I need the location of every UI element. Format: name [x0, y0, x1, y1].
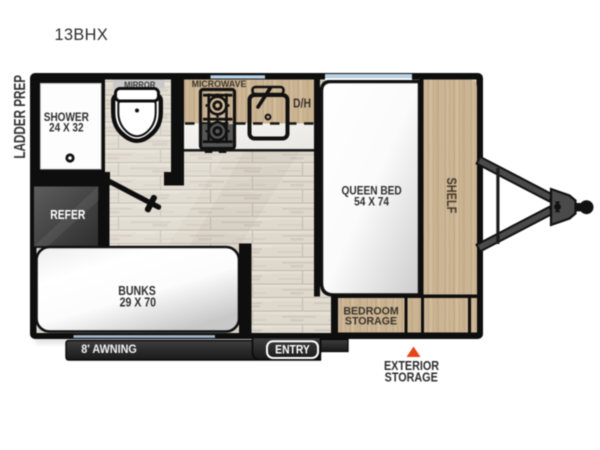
svg-text:STORAGE: STORAGE: [385, 369, 438, 384]
svg-text:STORAGE: STORAGE: [345, 315, 397, 327]
svg-text:24 X 32: 24 X 32: [49, 122, 84, 135]
svg-text:SHELF: SHELF: [444, 178, 460, 214]
svg-text:29 X 70: 29 X 70: [120, 296, 156, 310]
svg-text:13BHX: 13BHX: [55, 26, 109, 44]
svg-text:8' AWNING: 8' AWNING: [81, 344, 137, 357]
svg-text:REFER: REFER: [50, 209, 86, 222]
svg-text:54 X 74: 54 X 74: [354, 196, 390, 209]
svg-text:LADDER PREP: LADDER PREP: [10, 75, 28, 159]
svg-text:ENTRY: ENTRY: [275, 344, 310, 357]
svg-text:MICROWAVE: MICROWAVE: [192, 79, 247, 89]
svg-text:D/H: D/H: [293, 95, 311, 111]
